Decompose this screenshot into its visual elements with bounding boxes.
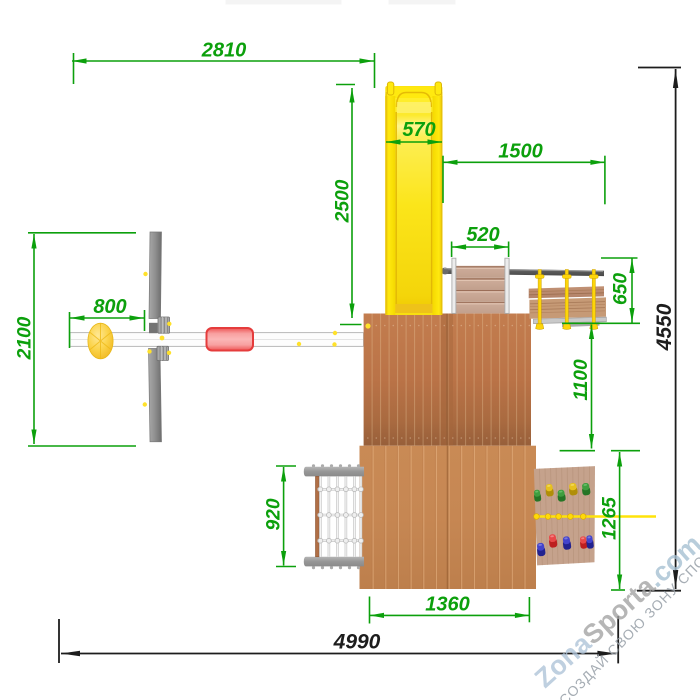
svg-text:2810: 2810 (201, 40, 247, 62)
svg-text:1100: 1100 (571, 359, 592, 401)
svg-text:920: 920 (264, 498, 285, 530)
svg-text:520: 520 (466, 224, 499, 246)
svg-text:4550: 4550 (653, 303, 676, 351)
svg-text:1500: 1500 (498, 141, 543, 163)
svg-text:2500: 2500 (333, 179, 354, 223)
svg-text:1265: 1265 (600, 497, 621, 540)
svg-text:4990: 4990 (333, 631, 381, 654)
svg-text:1360: 1360 (425, 594, 470, 616)
svg-text:570: 570 (402, 119, 435, 141)
svg-text:800: 800 (93, 296, 126, 318)
svg-text:2100: 2100 (15, 316, 36, 360)
svg-text:650: 650 (611, 273, 632, 305)
